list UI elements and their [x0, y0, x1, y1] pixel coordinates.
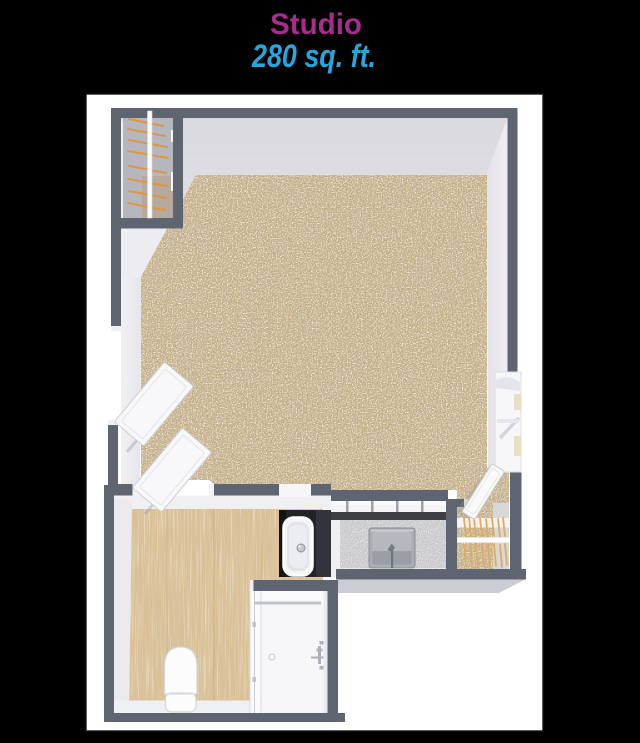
svg-text:280 sq. ft.: 280 sq. ft. — [251, 38, 376, 74]
svg-text:Studio: Studio — [270, 8, 362, 41]
